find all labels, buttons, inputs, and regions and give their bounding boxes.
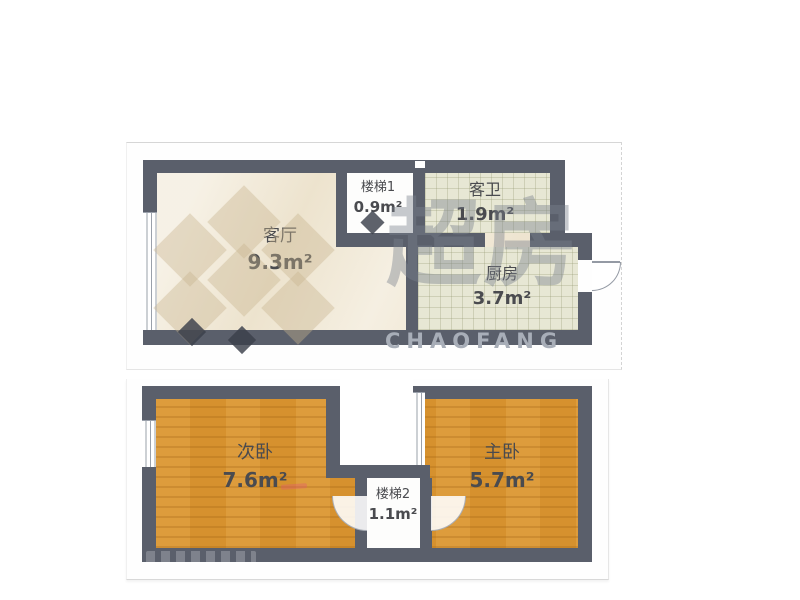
wall-segment — [336, 233, 485, 247]
wall-segment — [143, 160, 565, 173]
wall-notch — [415, 161, 425, 168]
wall-segment — [143, 160, 157, 212]
wall-segment — [578, 386, 592, 562]
wall-segment — [142, 386, 156, 420]
room-label-living: 客厅 9.3m² — [247, 224, 312, 277]
room-name: 楼梯1 — [354, 179, 403, 197]
room-name: 厨房 — [473, 263, 532, 286]
room-area: 7.6m² — [222, 466, 287, 494]
room-area: 5.7m² — [469, 466, 534, 494]
room-name: 楼梯2 — [369, 486, 418, 504]
wall-segment — [406, 247, 418, 330]
room-name: 客卫 — [456, 179, 515, 202]
window — [143, 212, 157, 332]
room-area: 9.3m² — [247, 248, 312, 276]
entry-door-leaf — [592, 261, 620, 263]
wall-segment — [326, 465, 430, 478]
room-label-second-bedroom: 次卧 7.6m² — [222, 440, 287, 494]
room-label-master-bedroom: 主卧 5.7m² — [469, 440, 534, 494]
wall-segment — [413, 160, 425, 233]
wall-segment — [143, 330, 592, 345]
room-label-kitchen: 厨房 3.7m² — [473, 263, 532, 311]
room-label-guest-bath: 客卫 1.9m² — [456, 179, 515, 227]
room-label-stairs2: 楼梯2 1.1m² — [369, 486, 418, 526]
wall-segment — [578, 247, 592, 260]
room-name: 次卧 — [222, 440, 287, 466]
wall-segment — [142, 386, 340, 399]
wall-segment — [336, 160, 347, 233]
room-name: 主卧 — [469, 440, 534, 466]
window — [413, 392, 425, 467]
void-recess — [340, 376, 413, 465]
floorplan-image: 客厅 9.3m² 楼梯1 0.9m² 客卫 1.9m² 厨房 3.7m² 次卧 … — [0, 0, 800, 600]
wall-segment — [413, 386, 592, 399]
room-area: 1.1m² — [369, 504, 418, 525]
wall-segment — [142, 548, 592, 562]
room-label-stairs1: 楼梯1 0.9m² — [354, 179, 403, 219]
room-area: 3.7m² — [473, 286, 532, 312]
room-area: 1.9m² — [456, 202, 515, 228]
window — [142, 420, 156, 469]
wall-segment — [530, 233, 592, 247]
room-area: 0.9m² — [354, 197, 403, 218]
wall-segment — [578, 292, 592, 330]
room-name: 客厅 — [247, 224, 312, 248]
